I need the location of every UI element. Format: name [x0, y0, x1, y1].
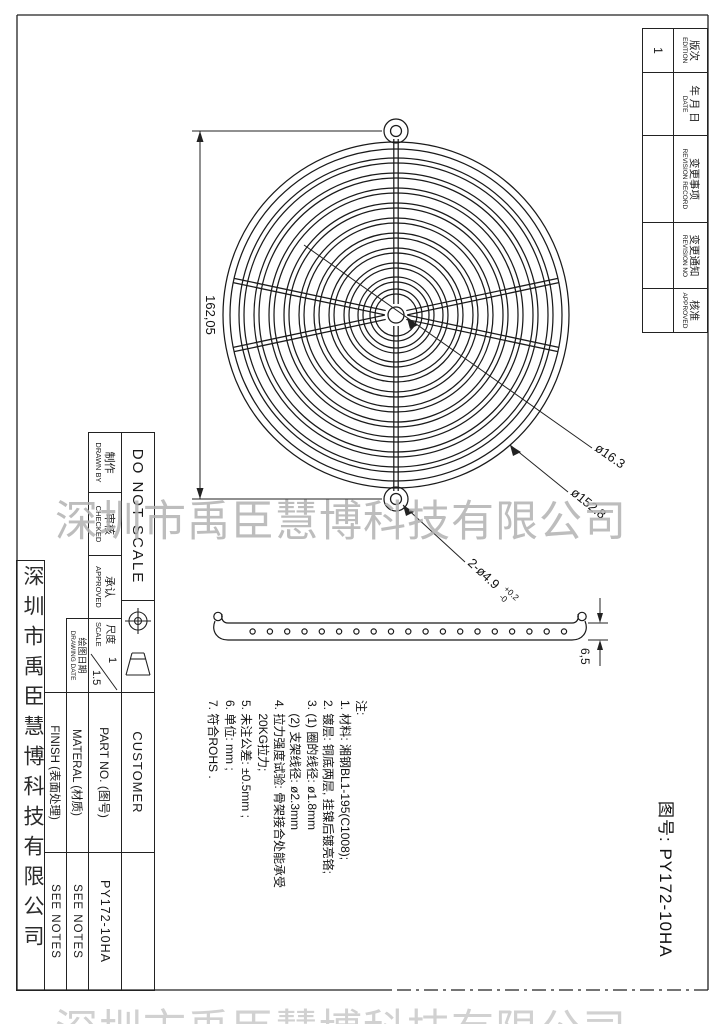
third-angle-projection-icon	[122, 601, 154, 692]
svg-text:1.5: 1.5	[90, 670, 102, 685]
material-label-cell: MATERAL (材质)	[66, 692, 89, 853]
drawing-date-cell: 绘图日期 DRAWING DATE	[66, 618, 89, 693]
scale-ratio: 1 1.5	[89, 650, 121, 692]
scale-cell: 尺度 SCALE 1 1.5	[88, 618, 122, 693]
note-line: 6. 单位: mm ;	[221, 700, 237, 995]
revision-header-date: 年 月 日 DATE	[673, 72, 708, 136]
projection-symbol-cell	[121, 600, 155, 693]
revision-header-record: 变更事项 REVISION RECORD	[673, 135, 708, 223]
customer-value-cell	[121, 692, 155, 991]
revision-value-record	[642, 135, 674, 223]
revision-header-no: 变更通知 REVISION NO	[673, 222, 708, 289]
note-line: 20KG拉力;	[254, 700, 270, 995]
material-value-cell: SEE NOTES	[66, 852, 89, 991]
revision-header-edition: 版次 EDITION	[673, 28, 708, 73]
fan-guard-front-view	[223, 139, 569, 491]
revision-table: 版次 EDITION 年 月 日 DATE 变更事项 REVISION RECO…	[643, 28, 708, 332]
dim-thickness: 6,5	[578, 598, 608, 666]
svg-text:1: 1	[106, 657, 118, 663]
drawing-sheet-scan: 162,05 6,5 ø16.3	[0, 0, 724, 1024]
part-no-label-cell: PART NO. (图号)	[88, 692, 122, 853]
note-line: 5. 未注公差: ±0.5mm ;	[238, 700, 254, 995]
note-line: 7. 符合ROHS .	[205, 700, 221, 995]
notes-title: 注:	[353, 700, 369, 995]
revision-value-approved	[642, 288, 674, 333]
revision-value-edition: 1	[642, 28, 674, 73]
note-line: 2. 镀层: 铜底两层, 挂镍后镀亮铬;	[320, 700, 336, 995]
approved-cell: 承认 APPROVED	[88, 555, 122, 619]
note-line: 1. 材料: 湘钢BL1-195(C1008);	[336, 700, 352, 995]
note-line: (2) 支架线径: ø2.3mm	[287, 700, 303, 995]
revision-value-date	[642, 72, 674, 136]
finish-label-cell: FINISH (表面处理)	[44, 692, 67, 853]
watermark-center: 深圳市禹臣慧博科技有限公司	[55, 487, 627, 549]
dim-overall: 162,05	[192, 131, 382, 499]
svg-text:ø16.3: ø16.3	[592, 440, 628, 471]
finish-value-cell: SEE NOTES	[44, 852, 67, 991]
watermark-bottom: 深圳市禹臣慧博科技有限公司	[55, 996, 627, 1024]
part-no-value-cell: PY172-10HA	[88, 852, 122, 991]
note-line: 4. 拉力强度试验: 骨架接合处能承受	[271, 700, 287, 995]
revision-value-no	[642, 222, 674, 289]
revision-header-approved: 核准 APPROVED	[673, 288, 708, 333]
svg-text:2-ø4.9: 2-ø4.9	[465, 555, 503, 592]
notes-block: 注: 1. 材料: 湘钢BL1-195(C1008); 2. 镀层: 铜底两层,…	[205, 700, 369, 995]
svg-text:162,05: 162,05	[203, 295, 218, 335]
drawing-number: 图号: PY172-10HA	[655, 801, 680, 958]
note-line: 3. (1) 圈的线径: ø1.8mm	[303, 700, 319, 995]
fan-guard-side-view	[214, 612, 586, 640]
company-name-vertical: 深圳市禹臣慧博科技有限公司	[15, 565, 47, 1005]
svg-text:6,5: 6,5	[578, 648, 592, 665]
drawn-by-cell: 制作 DRAWN BY	[88, 432, 122, 493]
